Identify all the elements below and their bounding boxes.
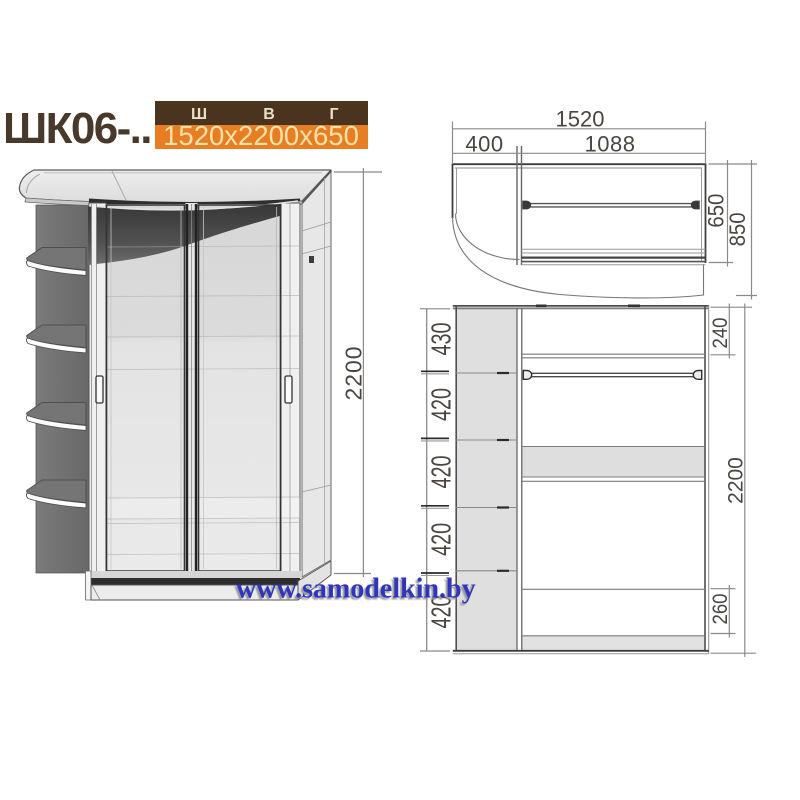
svg-text:240: 240 [709, 318, 732, 349]
svg-text:1088: 1088 [585, 131, 636, 156]
svg-text:420: 420 [426, 388, 457, 421]
svg-text:400: 400 [465, 131, 503, 156]
svg-text:2200: 2200 [725, 457, 748, 504]
svg-text:1520x2200x650: 1520x2200x650 [163, 120, 359, 151]
svg-text:1520: 1520 [556, 107, 605, 132]
svg-text:420: 420 [426, 456, 457, 489]
svg-text:430: 430 [426, 323, 457, 356]
svg-text:www.samodelkin.by: www.samodelkin.by [236, 574, 476, 605]
svg-text:420: 420 [426, 523, 457, 556]
svg-text:260: 260 [709, 594, 732, 625]
svg-text:ШК06-..: ШК06-.. [3, 104, 151, 153]
svg-text:2200: 2200 [341, 347, 367, 401]
svg-text:850: 850 [725, 212, 750, 246]
